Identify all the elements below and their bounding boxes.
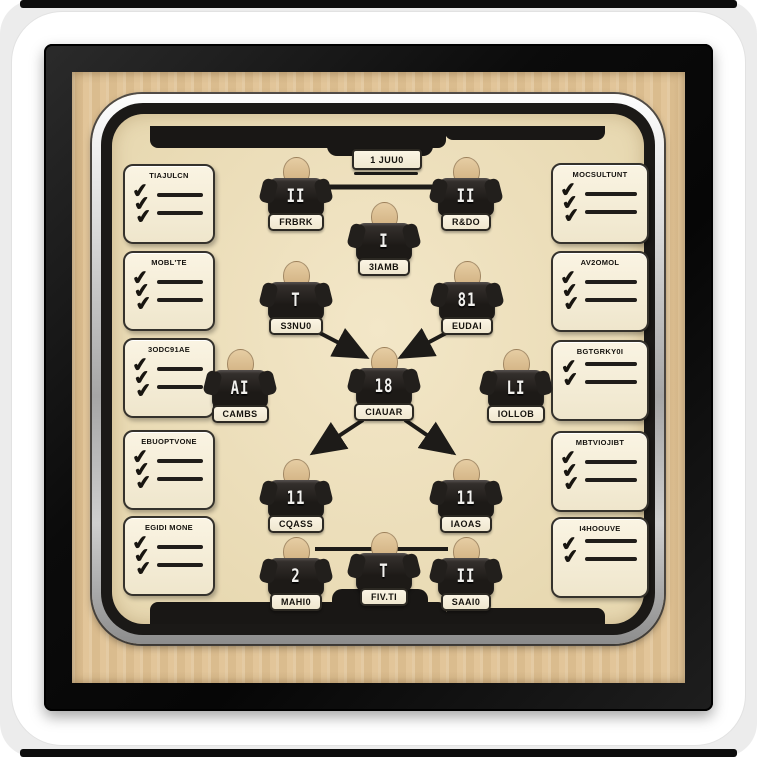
check-icon: ✔ <box>563 297 580 312</box>
player-name-plate: 3IAMB <box>358 258 410 276</box>
player-jersey-icon: T <box>268 282 324 320</box>
checklist-card-right-5[interactable]: I4HOOUVE ✔✔ <box>551 517 649 598</box>
list-lines <box>157 193 203 215</box>
jersey-number: T <box>379 562 388 583</box>
card-title: MBTVIOJIBT <box>553 433 647 447</box>
player-jersey-icon: II <box>438 558 494 596</box>
card-title: MOBL'TE <box>125 253 213 267</box>
player-name-plate: CQASS <box>268 515 324 533</box>
player-jersey-icon: II <box>268 178 324 216</box>
check-column: ✔✔✔ <box>132 184 153 225</box>
player-name-plate: MAHI0 <box>270 593 322 611</box>
arrow-center-to-left <box>313 420 363 453</box>
card-title: EGIDI MONE <box>125 518 213 532</box>
player-jersey-icon: AI <box>212 370 268 408</box>
jersey-number: II <box>457 567 476 588</box>
player-piece-8[interactable]: LI IOLLOB <box>468 349 564 423</box>
list-line <box>585 460 637 464</box>
list-line <box>157 211 203 215</box>
check-column: ✔✔✔ <box>132 536 153 577</box>
card-title: I4HOOUVE <box>553 519 647 533</box>
checklist-card-left-2[interactable]: MOBL'TE ✔✔✔ <box>123 251 215 331</box>
card-title: BGTGRKY0I <box>553 342 647 356</box>
player-jersey-icon: 81 <box>439 282 495 320</box>
player-name-plate: EUDAI <box>441 317 493 335</box>
player-piece-3[interactable]: I 3IAMB <box>336 202 432 276</box>
check-column: ✔✔✔ <box>132 450 153 491</box>
jersey-number: II <box>457 187 476 208</box>
list-line <box>157 459 203 463</box>
player-piece-9[interactable]: 11 CQASS <box>248 459 344 533</box>
list-line <box>157 563 203 567</box>
card-title: TIAJULCN <box>125 166 213 180</box>
jersey-number: I <box>379 232 388 253</box>
player-name-plate: R&DO <box>441 213 491 231</box>
jersey-number: 18 <box>375 377 394 398</box>
checklist-card-left-4[interactable]: EBUOPTVONE ✔✔✔ <box>123 430 215 510</box>
player-jersey-icon: II <box>438 178 494 216</box>
player-name-plate: CAMBS <box>212 405 269 423</box>
top-score-plate: 1 JUU0 <box>352 149 422 170</box>
check-icon: ✔ <box>562 550 579 565</box>
player-jersey-icon: I <box>356 223 412 261</box>
jersey-number: LI <box>507 379 526 400</box>
player-piece-5[interactable]: 81 EUDAI <box>419 261 515 335</box>
list-line <box>157 193 203 197</box>
check-column: ✔✔✔ <box>560 451 581 492</box>
jersey-number: 11 <box>457 489 476 510</box>
list-line <box>157 280 203 284</box>
list-line <box>585 192 637 196</box>
check-column: ✔✔ <box>560 537 579 565</box>
list-lines <box>585 362 637 384</box>
check-column: ✔✔✔ <box>560 183 581 224</box>
list-line <box>585 380 637 384</box>
player-name-plate: SAAI0 <box>441 593 492 611</box>
player-name-plate: IOLLOB <box>487 405 545 423</box>
check-icon: ✔ <box>135 562 152 577</box>
check-icon: ✔ <box>562 373 579 388</box>
list-lines <box>585 192 637 214</box>
list-line <box>585 298 637 302</box>
check-icon: ✔ <box>563 209 580 224</box>
arrow-center-to-right <box>405 420 453 453</box>
card-title: MOCSULTUNT <box>553 165 647 179</box>
check-icon: ✔ <box>135 297 152 312</box>
list-lines <box>585 539 637 561</box>
jersey-number: AI <box>231 379 250 400</box>
jersey-number: 2 <box>291 567 300 588</box>
jersey-number: II <box>287 187 306 208</box>
player-piece-6[interactable]: AI CAMBS <box>192 349 288 423</box>
check-column: ✔✔✔ <box>132 271 153 312</box>
player-name-plate: FRBRK <box>268 213 324 231</box>
check-column: ✔✔✔ <box>132 358 153 399</box>
check-icon: ✔ <box>135 476 152 491</box>
jersey-number: 81 <box>458 291 477 312</box>
card-title: AV2OMOL <box>553 253 647 267</box>
player-jersey-icon: T <box>356 553 412 591</box>
checklist-card-left-1[interactable]: TIAJULCN ✔✔✔ <box>123 164 215 244</box>
check-icon: ✔ <box>563 477 580 492</box>
checklist-card-right-4[interactable]: MBTVIOJIBT ✔✔✔ <box>551 431 649 512</box>
checklist-card-right-1[interactable]: MOCSULTUNT ✔✔✔ <box>551 163 649 244</box>
card-title: EBUOPTVONE <box>125 432 213 446</box>
list-lines <box>157 280 203 302</box>
checklist-card-right-3[interactable]: BGTGRKY0I ✔✔ <box>551 340 649 421</box>
player-piece-2[interactable]: II R&DO <box>418 157 514 231</box>
player-jersey-icon: LI <box>488 370 544 408</box>
list-lines <box>585 460 637 482</box>
check-icon: ✔ <box>135 210 152 225</box>
sticker-image: 1 JUU0 TIAJULCN ✔✔✔ MOBL'TE ✔✔✔ 3ODC91AE… <box>0 0 757 757</box>
player-piece-10[interactable]: 11 IAOAS <box>418 459 514 533</box>
top-label-underline <box>354 172 418 175</box>
player-piece-1[interactable]: II FRBRK <box>248 157 344 231</box>
player-jersey-icon: 11 <box>438 480 494 518</box>
jersey-number: 11 <box>287 489 306 510</box>
player-jersey-icon: 11 <box>268 480 324 518</box>
player-piece-13[interactable]: II SAAI0 <box>418 537 514 611</box>
player-name-plate: FIV.TI <box>360 588 408 606</box>
player-piece-11[interactable]: 2 MAHI0 <box>248 537 344 611</box>
list-line <box>585 557 637 561</box>
check-column: ✔✔✔ <box>560 271 581 312</box>
list-line <box>585 280 637 284</box>
player-name-plate: CIAUAR <box>354 403 413 421</box>
player-name-plate: S3NU0 <box>269 317 322 335</box>
list-line <box>157 298 203 302</box>
list-line <box>585 539 637 543</box>
player-jersey-icon: 2 <box>268 558 324 596</box>
player-piece-7[interactable]: 18 CIAUAR <box>336 347 432 421</box>
player-name-plate: IAOAS <box>440 515 493 533</box>
top-score-label: 1 JUU0 <box>370 155 404 165</box>
player-piece-4[interactable]: T S3NU0 <box>248 261 344 335</box>
list-line <box>585 210 637 214</box>
checklist-card-left-5[interactable]: EGIDI MONE ✔✔✔ <box>123 516 215 596</box>
jersey-number: T <box>291 291 300 312</box>
list-line <box>157 477 203 481</box>
list-line <box>585 362 637 366</box>
player-jersey-icon: 18 <box>356 368 412 406</box>
list-lines <box>585 280 637 302</box>
list-lines <box>157 459 203 481</box>
check-icon: ✔ <box>135 384 152 399</box>
list-line <box>585 478 637 482</box>
list-line <box>157 545 203 549</box>
checklist-card-right-2[interactable]: AV2OMOL ✔✔✔ <box>551 251 649 332</box>
list-lines <box>157 545 203 567</box>
